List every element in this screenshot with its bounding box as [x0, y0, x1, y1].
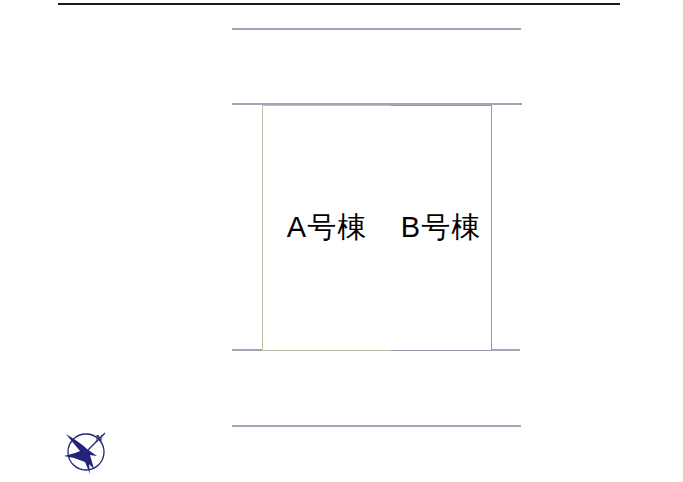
compass-bird-icon [64, 434, 97, 474]
compass-north-icon: N [62, 425, 112, 477]
compass-north-label: N [94, 432, 104, 444]
page-border-line [58, 3, 620, 5]
lot-a-label: A号棟 [287, 213, 367, 244]
road-line-bottom [232, 425, 521, 427]
lot-a-parcel: A号棟 [262, 105, 392, 351]
plot-layout-diagram: A号棟 B号棟 N [0, 0, 683, 482]
lot-b-parcel: B号棟 [391, 105, 492, 351]
road-line-top [232, 28, 521, 30]
lot-b-label: B号棟 [401, 213, 481, 244]
